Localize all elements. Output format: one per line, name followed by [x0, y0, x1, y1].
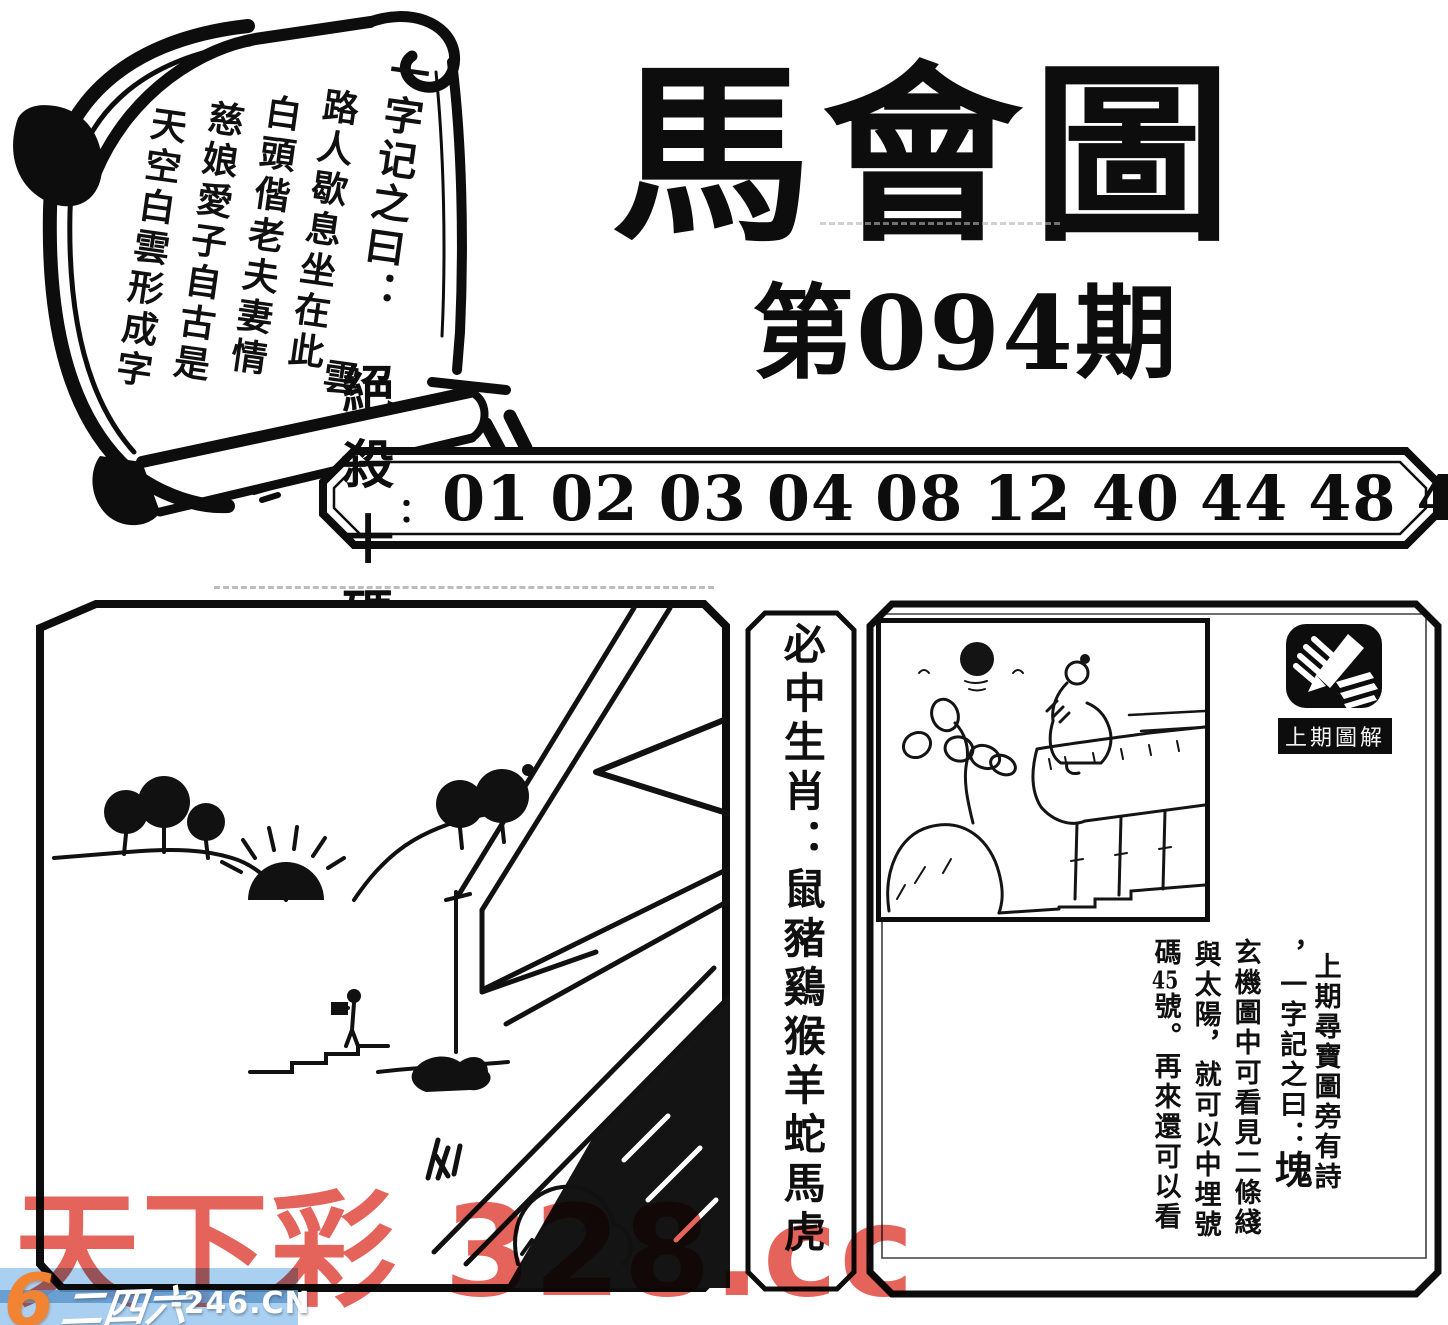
page-title: 馬會圖	[612, 0, 1242, 278]
previous-issue-commentary: 上期尋寶圖旁有詩 ，一字記之曰：塊 玄機圖中可看見二條綫 與太陽，就可以中埋號 …	[1146, 938, 1350, 1290]
site-logo-six-icon: 6	[4, 1258, 54, 1325]
killed-number: 44	[1200, 462, 1288, 535]
lucky-number: 45	[1151, 968, 1180, 992]
scan-artifact-line	[214, 586, 714, 589]
killed-number: 48	[1308, 462, 1396, 535]
previous-issue-caption: 上期圖解	[1278, 718, 1392, 754]
issue-number: 第094期	[752, 252, 1179, 399]
killed-number: 49	[1417, 462, 1448, 535]
commentary-column: 與太陽，就可以中埋號	[1190, 940, 1219, 1240]
scroll-heading: 一字记之曰：	[351, 48, 430, 315]
banner-content: 絕殺十碼 ： 01 02 03 04 08 12 40 44 48 49	[318, 446, 1442, 550]
banner-colon: ：	[398, 483, 432, 532]
killed-numbers-banner: 絕殺十碼 ： 01 02 03 04 08 12 40 44 48 49	[318, 446, 1442, 550]
previous-issue-picture	[876, 618, 1210, 922]
killed-number: 04	[767, 462, 855, 535]
commentary-text: ，一字記之曰：	[1275, 940, 1306, 1150]
commentary-text: 碼	[1150, 938, 1181, 968]
commentary-text: 號。再來還可以看	[1150, 992, 1181, 1232]
site-logo-domain: -246.CN	[170, 1286, 311, 1321]
commentary-column: 碼45號。再來還可以看	[1150, 938, 1179, 1232]
commentary-column: 玄機圖中可看見二條綫	[1230, 938, 1259, 1238]
answer-character: 塊	[1268, 1150, 1313, 1191]
killed-numbers-list: 01 02 03 04 08 12 40 44 48 49	[442, 462, 1448, 535]
commentary-column: 上期尋寶圖旁有詩	[1310, 952, 1339, 1192]
killed-number: 01	[442, 462, 530, 535]
scan-artifact-line	[820, 222, 1060, 225]
commentary-column: ，一字記之曰：塊	[1270, 940, 1310, 1191]
praying-figure-drawing	[881, 623, 1205, 917]
killed-number: 12	[983, 462, 1071, 535]
tip-sheet-page: 一字记之曰： 路人歇息坐在此 白頭偕老夫妻情 慈娘愛子自古是 天空白雲形成字 雲…	[0, 0, 1448, 1325]
writing-hand-icon	[1284, 622, 1384, 712]
killed-number: 02	[550, 462, 638, 535]
killed-number: 40	[1092, 462, 1180, 535]
killed-number: 03	[659, 462, 747, 535]
killed-number: 08	[875, 462, 963, 535]
